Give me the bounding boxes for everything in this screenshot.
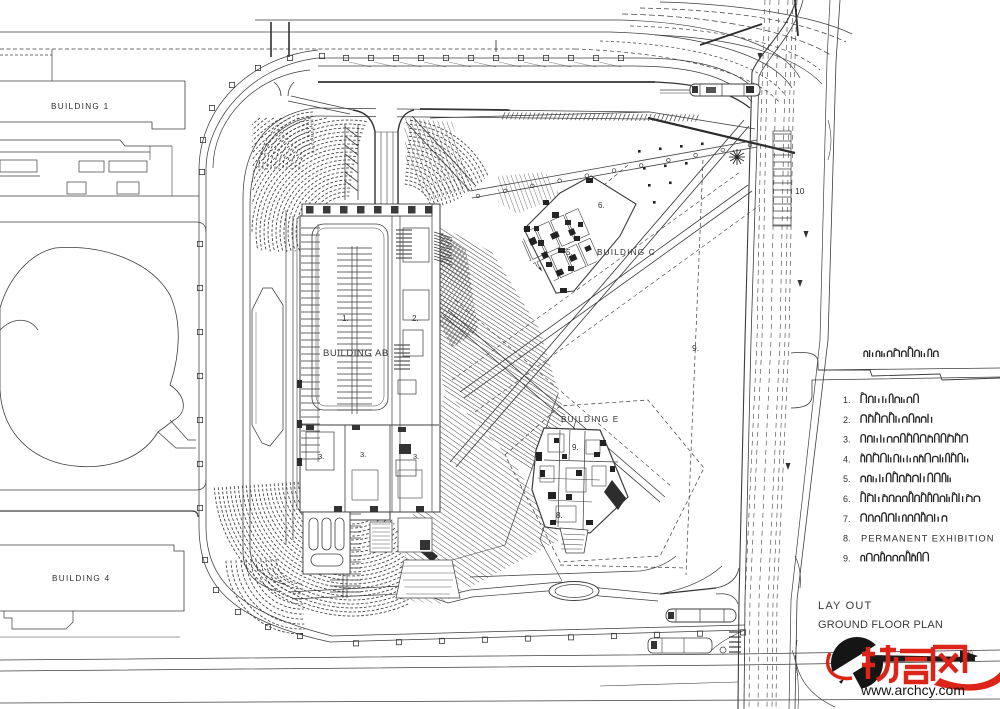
svg-text:4.: 4. (843, 454, 851, 464)
svg-text:www.archcy.com: www.archcy.com (860, 682, 965, 698)
svg-text:BUILDING E: BUILDING E (561, 415, 619, 424)
svg-text:BUILDING 4: BUILDING 4 (52, 574, 111, 583)
svg-text:1.: 1. (843, 395, 851, 405)
svg-text:BUILDING AB: BUILDING AB (323, 348, 389, 359)
svg-text:3.: 3. (413, 452, 419, 461)
svg-text:10: 10 (795, 186, 805, 196)
svg-text:8.: 8. (843, 534, 851, 544)
svg-text:6.: 6. (843, 494, 851, 504)
svg-text:3.: 3. (318, 452, 324, 461)
svg-text:7.: 7. (843, 514, 851, 524)
svg-text:5.: 5. (566, 248, 573, 257)
svg-text:8.: 8. (556, 511, 563, 520)
svg-text:BUILDING C: BUILDING C (597, 248, 656, 257)
svg-text:9.: 9. (572, 443, 579, 452)
svg-text:5.: 5. (843, 474, 851, 484)
svg-text:2.: 2. (412, 314, 419, 323)
svg-text:2.: 2. (843, 415, 851, 425)
svg-text:1.: 1. (342, 314, 349, 323)
svg-text:GROUND FLOOR PLAN: GROUND FLOOR PLAN (818, 619, 943, 631)
svg-text:PERMANENT EXHIBITION: PERMANENT EXHIBITION (861, 534, 994, 544)
svg-text:LAY OUT: LAY OUT (818, 600, 872, 612)
svg-text:9.: 9. (692, 343, 699, 353)
svg-text:3.: 3. (843, 435, 851, 445)
svg-text:3.: 3. (360, 450, 366, 459)
svg-text:BUILDING 1: BUILDING 1 (51, 102, 110, 111)
svg-text:9.: 9. (843, 553, 851, 563)
svg-text:6.: 6. (598, 201, 605, 210)
